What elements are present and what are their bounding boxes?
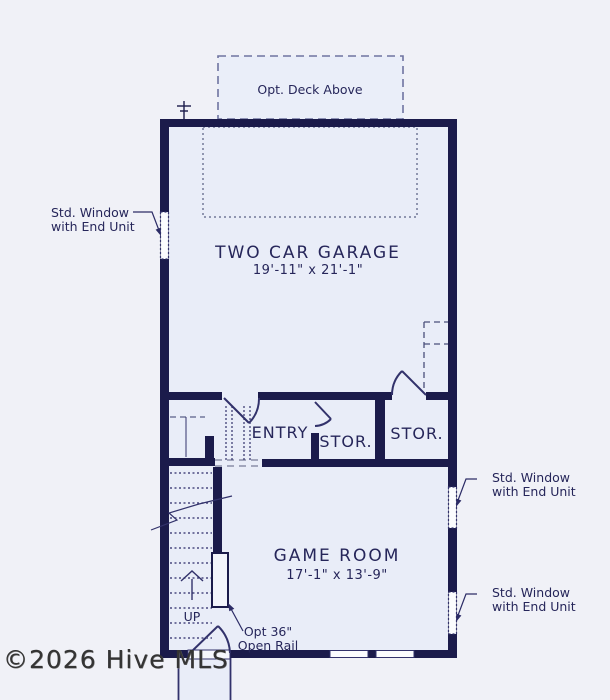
open-rail [212,553,228,607]
leader-window-right-upper [457,479,477,503]
game-room-dims: 17'-1" x 13'-9" [286,568,388,583]
window-left [161,212,169,259]
window-right-lower [449,592,457,634]
storage1-room-name: STOR. [319,432,372,451]
game-room-name: GAME ROOM [274,546,401,566]
window-right-upper-label: Std. Window with End Unit [492,471,576,499]
open-rail-label: Opt 36" Open Rail [238,625,298,653]
garage-room-name: TWO CAR GARAGE [215,243,401,263]
stair-up-label: UP [184,610,201,624]
floor-plan: Opt. Deck Above TWO CAR GARAGE 19'-11" x… [0,0,610,700]
floor-fill [169,127,448,700]
window-right-lower-label: Std. Window with End Unit [492,586,576,614]
window-left-label: Std. Window with End Unit [51,206,135,234]
meter-symbol [177,101,191,119]
entry-room-name: ENTRY [252,423,309,442]
garage-room-dims: 19'-11" x 21'-1" [253,263,363,278]
window-right-upper [449,487,457,528]
deck-label: Opt. Deck Above [257,83,362,97]
mls-watermark: ©2026 Hive MLS [3,645,229,674]
storage2-room-name: STOR. [390,424,443,443]
leader-window-right-lower [457,594,477,618]
